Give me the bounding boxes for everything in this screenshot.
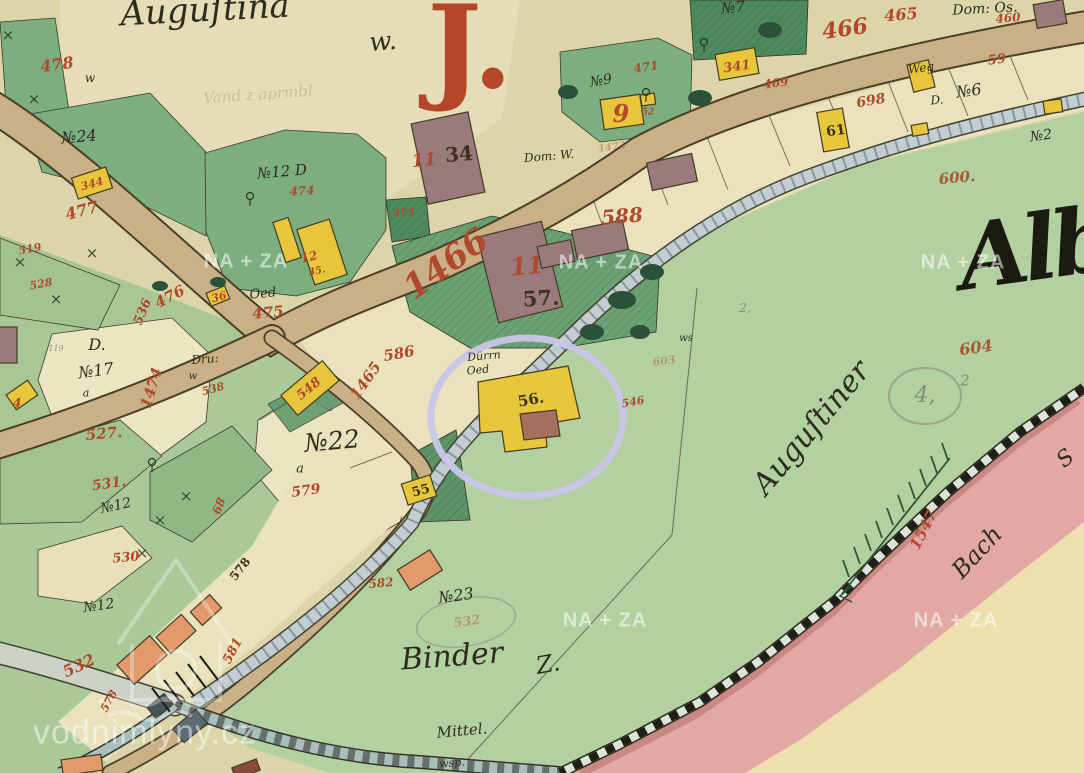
svg-text:×: × [50,290,63,308]
svg-text:×: × [136,544,149,562]
svg-text:×: × [2,26,15,44]
svg-text:×: × [180,487,193,505]
mill-building-56-annex [520,410,560,440]
cadastral-map: ××× ××× ×× [0,0,1084,773]
svg-text:×: × [154,511,167,529]
svg-text:×: × [86,244,99,262]
svg-text:×: × [28,90,41,108]
svg-text:×: × [14,253,27,271]
map-drawing: ××× ××× ×× [0,0,1084,773]
